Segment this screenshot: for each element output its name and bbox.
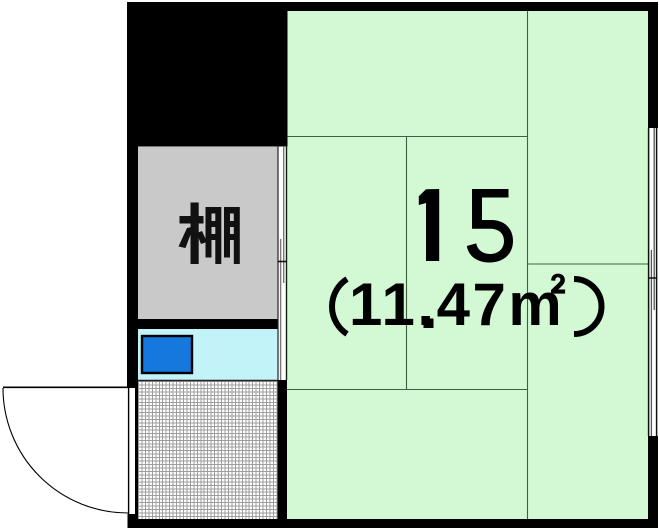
svg-text:11.47m: 11.47m <box>349 271 564 338</box>
